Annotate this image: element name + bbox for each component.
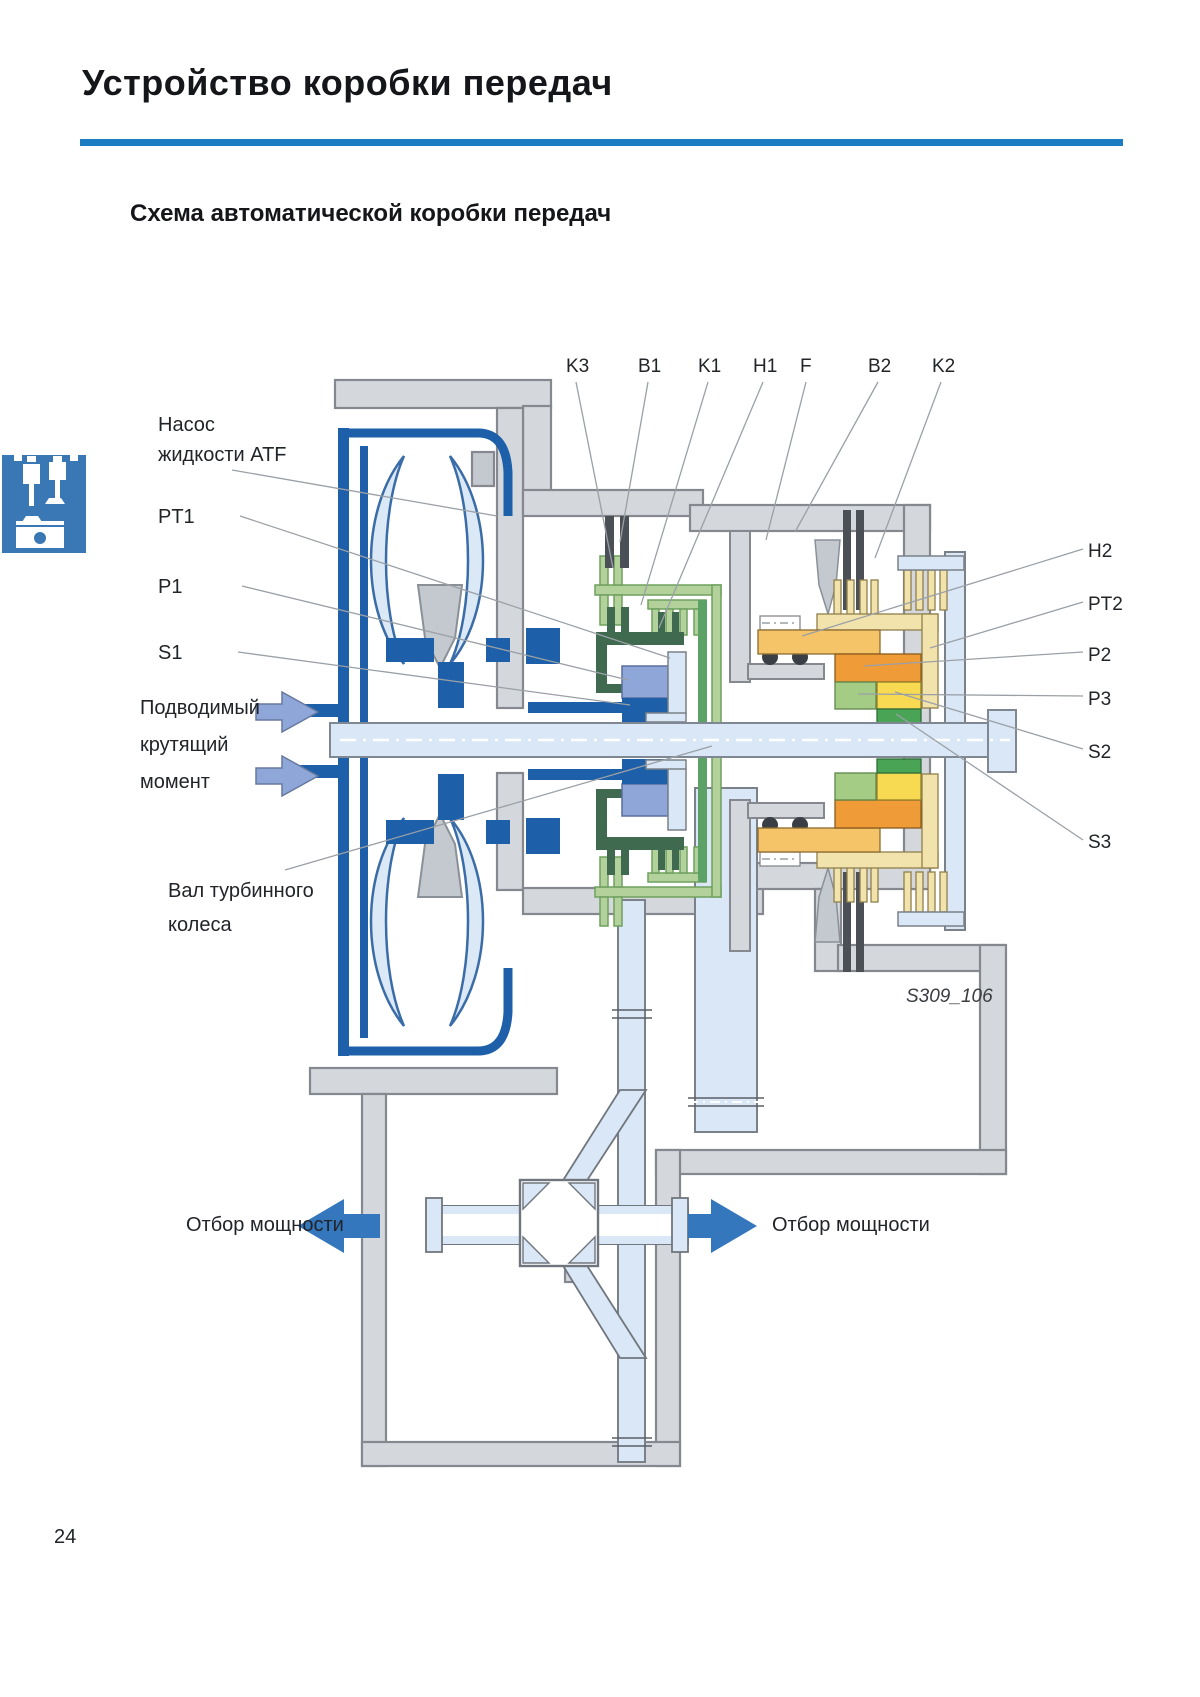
label-s2: S2 [1088,738,1111,768]
label-pt1: PT1 [158,502,195,532]
page-number: 24 [54,1526,76,1549]
clutch-section [526,556,721,723]
torque-converter-internals [296,456,510,717]
label-atf-pump: Насос жидкости ATF [158,410,287,470]
document-page: Устройство коробки передач Схема автомат… [0,0,1200,1697]
label-p2: P2 [1088,641,1111,671]
label-s3: S3 [1088,828,1111,858]
label-turbine-shaft: Вал турбинного колеса [168,874,314,942]
label-k1: K1 [698,352,721,382]
label-k3: K3 [566,352,589,382]
label-f: F [800,352,812,382]
label-k2: K2 [932,352,955,382]
label-s1: S1 [158,638,182,668]
label-p3: P3 [1088,685,1111,715]
label-p1: P1 [158,572,182,602]
label-b2: B2 [868,352,891,382]
label-pt2: PT2 [1088,590,1123,620]
label-b1: B1 [638,352,661,382]
label-power-takeoff-right: Отбор мощности [772,1210,930,1240]
transmission-diagram [0,0,1200,1697]
label-h1: H1 [753,352,777,382]
label-power-takeoff-left: Отбор мощности [186,1210,344,1240]
label-h2: H2 [1088,537,1112,567]
power-takeoff-assembly [426,1090,688,1358]
input-torque-arrows [256,692,318,796]
label-input-torque: Подводимый крутящий момент [140,690,260,801]
figure-code: S309_106 [906,986,993,1008]
